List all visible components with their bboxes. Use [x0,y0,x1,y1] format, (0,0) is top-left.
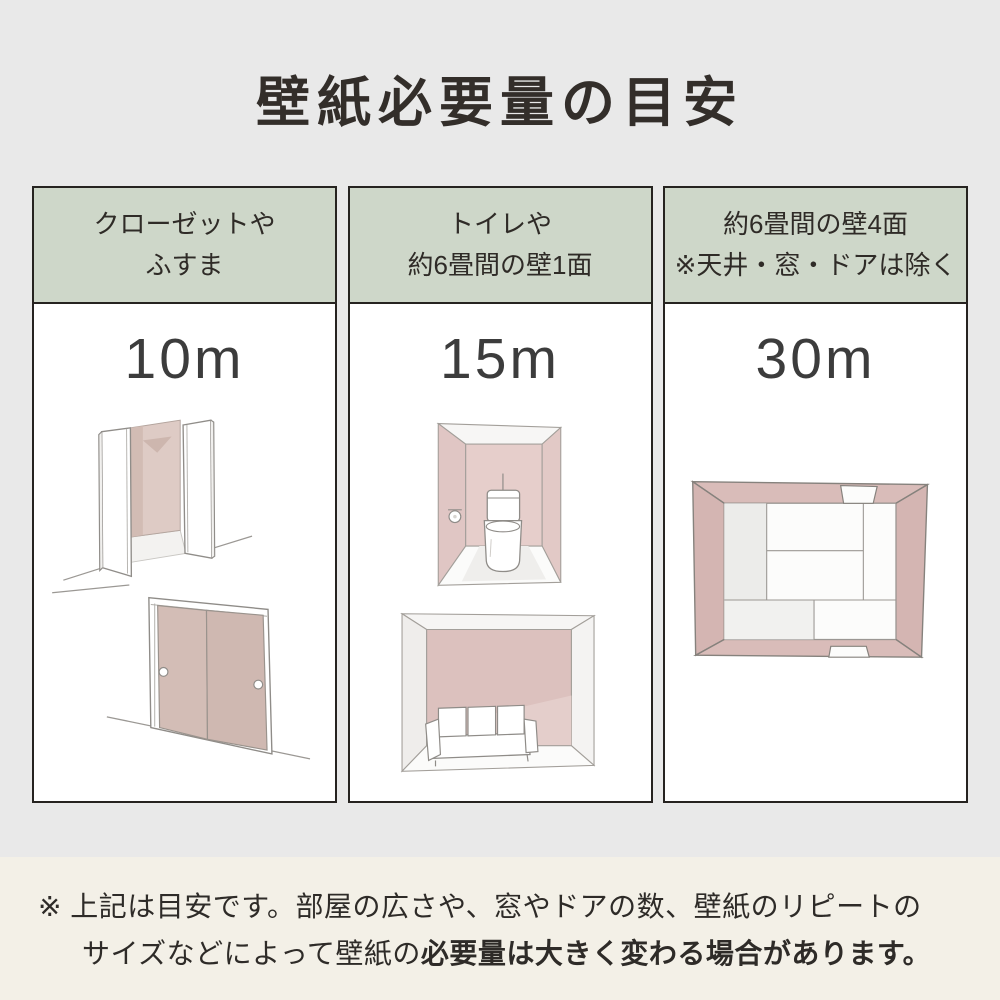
room-with-sofa-drawing [389,598,611,790]
card-toilet-value: 15m [350,304,651,402]
page-title: 壁紙必要量の目安 [0,0,1000,137]
footer-note-line1: ※ 上記は目安です。部屋の広さや、窓やドアの数、壁紙のリピートの [38,883,970,930]
card-closet-header-line2: ふすま [145,245,223,286]
card-closet-value: 10m [34,304,335,402]
card-closet-fusuma: クローゼットや ふすま 10m [32,186,337,803]
footer-note: ※ 上記は目安です。部屋の広さや、窓やドアの数、壁紙のリピートの サイズなどによ… [0,857,1000,1000]
card-four-walls-header: 約6畳間の壁4面 ※天井・窓・ドアは除く [665,188,966,304]
card-toilet-one-wall: トイレや 約6畳間の壁1面 15m [348,186,653,803]
card-toilet-header: トイレや 約6畳間の壁1面 [350,188,651,304]
card-four-walls-header-line1: 約6畳間の壁4面 [723,204,908,245]
tatami-room-top-view-illustration [665,442,966,684]
toilet-room-drawing [397,402,603,598]
fusuma-illustration [34,584,335,794]
card-closet-header-line1: クローゼットや [93,204,275,245]
card-four-walls: 約6畳間の壁4面 ※天井・窓・ドアは除く 30m [663,186,968,803]
footer-note-line2: サイズなどによって壁紙の必要量は大きく変わる場合があります。 [38,930,970,977]
card-closet-header: クローゼットや ふすま [34,188,335,304]
room-with-sofa-illustration [350,598,651,790]
estimate-cards: クローゼットや ふすま 10m [0,186,1000,803]
card-toilet-header-line1: トイレや [448,204,552,245]
open-closet-illustration [34,402,335,584]
footer-note-line2-bold: 必要量は大きく変わる場合があります。 [421,938,931,969]
open-closet-drawing [40,402,330,584]
fusuma-drawing [35,584,335,794]
toilet-room-illustration [350,402,651,598]
card-four-walls-value: 30m [665,304,966,402]
tatami-room-drawing [673,442,959,684]
card-four-walls-header-line2: ※天井・窓・ドアは除く [675,245,957,286]
card-toilet-header-line2: 約6畳間の壁1面 [408,245,593,286]
main-section: 壁紙必要量の目安 クローゼットや ふすま 10m [0,0,1000,857]
footer-note-line2-normal: サイズなどによって壁紙の [82,938,421,969]
